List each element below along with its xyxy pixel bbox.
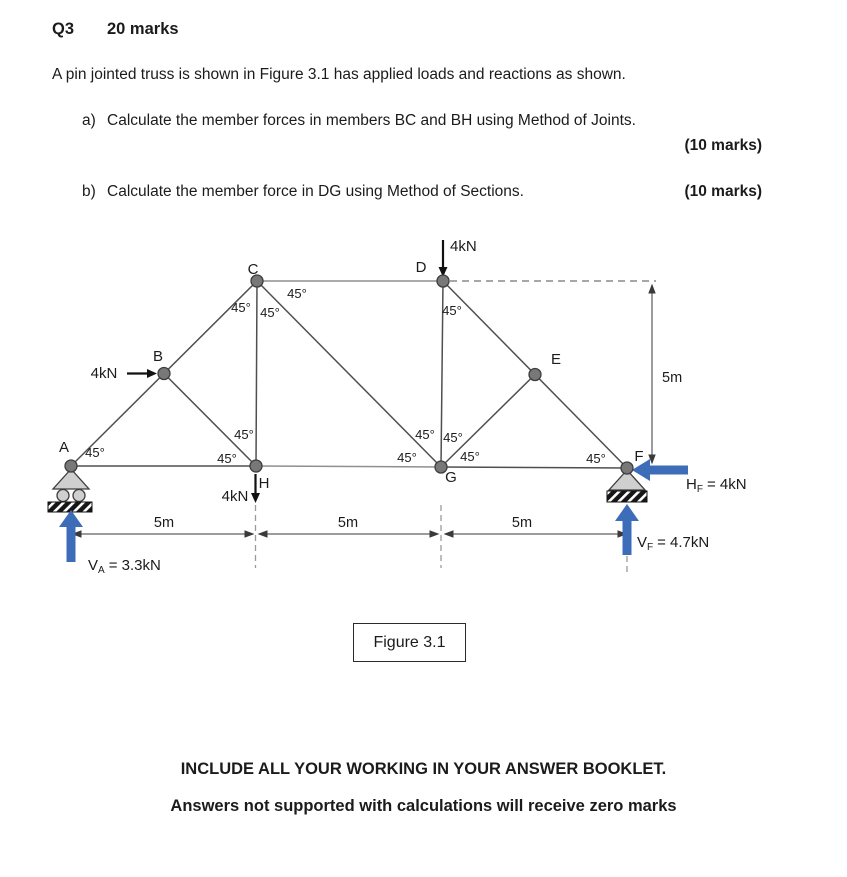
support-a-roller-left xyxy=(57,490,69,502)
reaction-arrows xyxy=(59,459,688,562)
member-cg xyxy=(257,281,441,467)
load-h-arrow-head xyxy=(251,493,260,503)
load-h-label: 4kN xyxy=(222,488,249,505)
reaction-vf-arrow xyxy=(615,504,639,555)
load-b-label: 4kN xyxy=(91,365,118,382)
dim-gf-label: 5m xyxy=(512,515,532,531)
figure-caption: Figure 3.1 xyxy=(373,634,445,652)
joint-d xyxy=(437,275,449,287)
reaction-hf-label: HF= 4kN xyxy=(686,476,747,495)
joint-a xyxy=(65,460,77,472)
angle-at-d: 45° xyxy=(442,303,462,318)
dim-arrow xyxy=(445,531,453,537)
dashed-projection-lines xyxy=(256,505,628,572)
joint-label-h: H xyxy=(259,475,270,492)
dim-arrow xyxy=(245,531,253,537)
joint-label-d: D xyxy=(416,259,427,276)
member-ge xyxy=(441,375,535,468)
dim-arrow xyxy=(430,531,438,537)
load-b-arrow-head xyxy=(147,369,157,378)
angle-at-f: 45° xyxy=(586,451,606,466)
dim-height-label: 5m xyxy=(662,370,682,386)
truss-figure: A B C D E F G H 45° 45° 45° 45° 45° 45° … xyxy=(0,0,847,877)
joint-label-a: A xyxy=(59,439,69,456)
member-ch xyxy=(256,281,257,466)
footer-notice-2: Answers not supported with calculations … xyxy=(0,797,847,816)
angle-at-h-left: 45° xyxy=(217,451,237,466)
member-bh xyxy=(164,374,256,467)
member-gf xyxy=(441,467,627,468)
support-f-ground-hatch xyxy=(607,491,647,502)
support-a-ground-hatch xyxy=(48,502,92,512)
member-hg xyxy=(256,466,441,467)
load-d-label: 4kN xyxy=(450,238,477,255)
joint-b xyxy=(158,368,170,380)
dim-arrow xyxy=(259,531,267,537)
footer-notice-1: INCLUDE ALL YOUR WORKING IN YOUR ANSWER … xyxy=(0,760,847,779)
dimension-lines xyxy=(73,285,655,537)
angle-at-g-lower-right: 45° xyxy=(460,449,480,464)
joint-label-g: G xyxy=(445,469,457,486)
joint-label-b: B xyxy=(153,348,163,365)
joint-label-f: F xyxy=(634,448,643,465)
angle-at-a: 45° xyxy=(85,445,105,460)
exam-page: { "header": { "question": "Q3", "marks":… xyxy=(0,0,847,877)
dim-hg-label: 5m xyxy=(338,515,358,531)
angle-at-g-lower-left: 45° xyxy=(397,450,417,465)
angle-at-c-upper-right: 45° xyxy=(287,286,307,301)
joint-f xyxy=(621,462,633,474)
joint-label-e: E xyxy=(551,351,561,368)
reaction-labels: VA= 3.3kN VF= 4.7kN HF= 4kN xyxy=(88,476,747,576)
support-a-roller-right xyxy=(73,490,85,502)
angle-at-g-upper-right: 45° xyxy=(443,430,463,445)
angle-at-g-upper-left: 45° xyxy=(415,427,435,442)
reaction-vf-label: VF= 4.7kN xyxy=(637,534,709,553)
joint-e xyxy=(529,369,541,381)
angle-at-h-above: 45° xyxy=(234,427,254,442)
dim-arrow xyxy=(649,285,655,293)
dim-ah-label: 5m xyxy=(154,515,174,531)
angle-at-c-right: 45° xyxy=(260,305,280,320)
figure-caption-box: Figure 3.1 xyxy=(353,623,466,662)
angle-at-c-left: 45° xyxy=(231,300,251,315)
joint-h xyxy=(250,460,262,472)
joint-label-c: C xyxy=(248,261,259,278)
support-a-roller xyxy=(48,469,92,512)
reaction-va-label: VA= 3.3kN xyxy=(88,557,161,576)
